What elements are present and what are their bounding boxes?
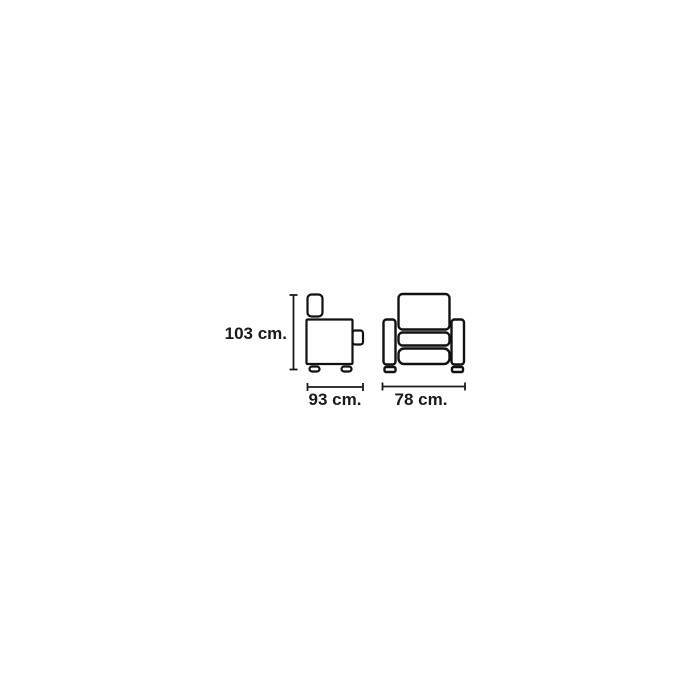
side-foot-right <box>342 367 352 372</box>
front-foot-right <box>452 367 463 372</box>
width-dimension-label: 78 cm. <box>371 390 471 410</box>
armchair-side-view <box>307 295 364 372</box>
side-headrest <box>308 295 323 317</box>
front-foot-left <box>385 367 396 372</box>
height-dimension-line <box>290 295 298 370</box>
side-body <box>307 320 353 365</box>
height-dimension-label: 103 cm. <box>207 324 287 344</box>
armchair-dimension-diagram: 103 cm. 93 cm. 78 cm. <box>0 0 700 700</box>
armchair-front-view <box>384 294 465 372</box>
side-armrest-knob <box>353 331 364 345</box>
side-foot-left <box>310 367 320 372</box>
armchair-line-drawing <box>0 0 700 700</box>
front-armrest-right <box>452 320 465 365</box>
front-armrest-left <box>384 320 396 365</box>
front-backrest <box>399 294 450 330</box>
front-cushion-bottom <box>399 349 450 365</box>
front-cushion-middle <box>399 333 450 346</box>
depth-dimension-label: 93 cm. <box>285 390 385 410</box>
